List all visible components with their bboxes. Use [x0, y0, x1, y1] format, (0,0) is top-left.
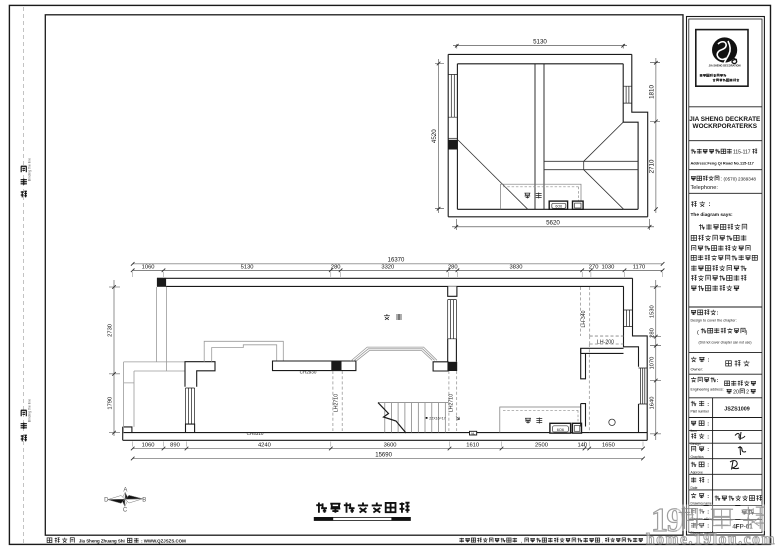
svg-text::: :	[708, 358, 710, 364]
svg-text:1170: 1170	[633, 264, 645, 270]
svg-text:Owner:: Owner:	[691, 367, 704, 372]
svg-text:5620: 5620	[546, 220, 560, 227]
svg-text:Telephone:: Telephone:	[691, 185, 719, 191]
svg-text:3830: 3830	[510, 264, 523, 270]
svg-text:home.19lou.com: home.19lou.com	[646, 531, 776, 548]
svg-text::: :	[717, 311, 719, 317]
svg-text:3600: 3600	[384, 443, 397, 449]
svg-text::: :	[721, 176, 722, 182]
svg-text:JSZS1009: JSZS1009	[724, 406, 749, 412]
svg-text:Date: Date	[691, 486, 698, 490]
svg-text::: :	[717, 378, 719, 384]
svg-text:CH2930: CH2930	[300, 370, 317, 375]
svg-text:1070: 1070	[649, 357, 655, 370]
svg-text:Binding the line: Binding the line	[28, 399, 32, 422]
svg-text:Engineering address:: Engineering address:	[691, 388, 724, 392]
svg-text:Design to cover the chapter:: Design to cover the chapter:	[691, 319, 737, 323]
svg-text:22X16=17: 22X16=17	[429, 416, 446, 420]
svg-text:2: 2	[746, 389, 749, 395]
svg-text:(Did not cover chapter can not: (Did not cover chapter can not use)	[699, 340, 752, 344]
svg-text:270: 270	[589, 264, 599, 270]
svg-text:,: ,	[521, 538, 522, 544]
svg-text:1060: 1060	[142, 264, 155, 270]
svg-text:ML: ML	[471, 432, 475, 436]
svg-text:1610: 1610	[466, 443, 479, 449]
svg-text:6O6: 6O6	[557, 428, 564, 432]
svg-text:1810: 1810	[648, 85, 655, 99]
svg-text:: WWW.QZJSZS.COM: : WWW.QZJSZS.COM	[141, 539, 186, 544]
svg-text:1650: 1650	[602, 443, 615, 449]
svg-text:CH5310: CH5310	[247, 431, 264, 436]
svg-text:280: 280	[448, 264, 458, 270]
svg-text:15690: 15690	[375, 453, 392, 459]
svg-text::: :	[707, 463, 709, 469]
svg-text:.: .	[602, 538, 603, 544]
svg-text:890: 890	[170, 443, 180, 449]
svg-text:Graphics: Graphics	[691, 455, 705, 459]
svg-text:Address:Feng Qi Road No.115-11: Address:Feng Qi Road No.115-117	[691, 160, 754, 165]
svg-text:WOCKRPORATERKS: WOCKRPORATERKS	[693, 123, 758, 130]
svg-text:(0570) 2389348: (0570) 2389348	[724, 176, 757, 181]
svg-text::: :	[707, 402, 709, 408]
svg-text:2500: 2500	[535, 443, 548, 449]
svg-text:115-117: 115-117	[733, 149, 751, 155]
svg-text:1030: 1030	[601, 264, 614, 270]
svg-text::: :	[707, 422, 709, 428]
svg-text:1060: 1060	[142, 443, 155, 449]
svg-text:1530: 1530	[649, 305, 655, 318]
svg-text:Binding the line: Binding the line	[28, 158, 32, 181]
svg-text:1790: 1790	[108, 397, 114, 410]
svg-text:LH2710: LH2710	[448, 394, 454, 412]
svg-text:2710: 2710	[648, 159, 655, 173]
svg-text:5130: 5130	[533, 38, 547, 45]
svg-text:C: C	[123, 508, 128, 514]
svg-text:4520: 4520	[431, 129, 438, 143]
svg-text:JIA SHENG DECORATION: JIA SHENG DECORATION	[709, 63, 741, 67]
svg-text:2730: 2730	[108, 324, 114, 337]
svg-text::: :	[707, 478, 709, 484]
svg-text:B: B	[142, 498, 146, 504]
svg-text:Plait number: Plait number	[691, 409, 710, 413]
svg-text:(: (	[697, 330, 699, 336]
svg-text:): )	[746, 330, 748, 336]
svg-text:16370: 16370	[388, 257, 405, 263]
svg-text::: :	[709, 202, 711, 208]
svg-text:280: 280	[649, 328, 655, 338]
svg-text:6O6: 6O6	[555, 205, 562, 209]
svg-text:Jia Sheng Zhuang Shi: Jia Sheng Zhuang Shi	[79, 539, 125, 544]
svg-text::: :	[707, 447, 709, 453]
svg-text:140: 140	[577, 443, 587, 449]
svg-text:LH-340: LH-340	[581, 310, 587, 327]
svg-text:3320: 3320	[381, 264, 394, 270]
svg-text:Approve: Approve	[691, 470, 703, 474]
svg-text:D: D	[104, 498, 109, 504]
svg-text::: :	[707, 494, 709, 500]
svg-text:JIA SHENG DECKRATE: JIA SHENG DECKRATE	[689, 116, 761, 123]
svg-text:20: 20	[733, 389, 739, 395]
svg-text:5130: 5130	[241, 264, 254, 270]
svg-text:Item: Item	[691, 429, 698, 433]
svg-text:280: 280	[331, 264, 341, 270]
svg-text:4240: 4240	[258, 443, 271, 449]
svg-text:Design: Design	[691, 442, 701, 446]
svg-text:LH-200: LH-200	[597, 339, 614, 345]
svg-text:The diagram says:: The diagram says:	[691, 212, 734, 218]
svg-text:A: A	[123, 488, 127, 494]
svg-text:1640: 1640	[649, 397, 655, 410]
svg-text:LH2710: LH2710	[334, 394, 340, 412]
svg-text::: :	[707, 434, 709, 440]
